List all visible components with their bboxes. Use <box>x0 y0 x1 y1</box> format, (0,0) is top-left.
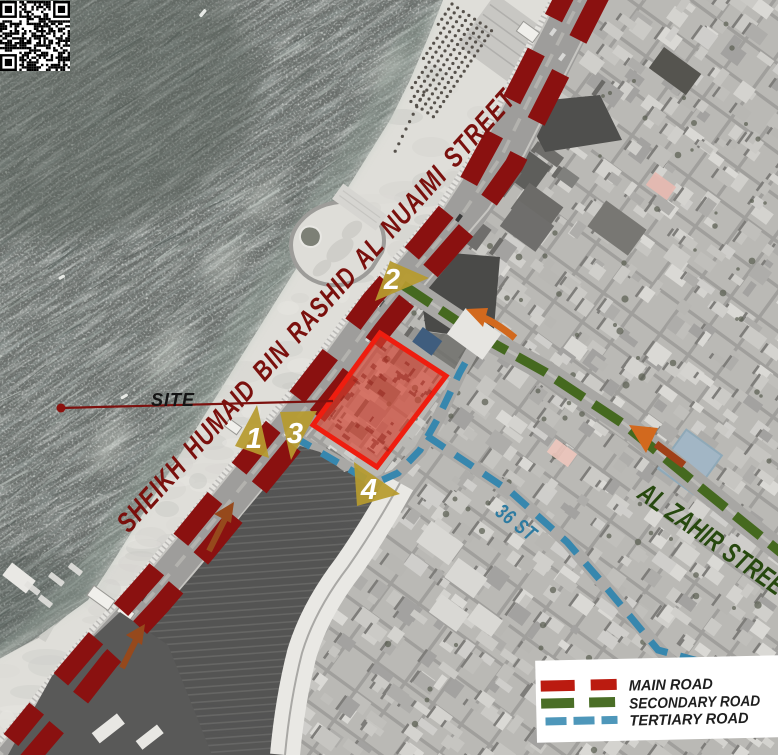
svg-text:MAIN ROAD: MAIN ROAD <box>629 676 714 695</box>
svg-text:1: 1 <box>246 423 262 455</box>
svg-text:TERTIARY ROAD: TERTIARY ROAD <box>629 710 749 730</box>
svg-text:2: 2 <box>383 264 400 296</box>
svg-text:4: 4 <box>360 474 377 506</box>
svg-text:SITE: SITE <box>151 390 195 410</box>
svg-text:3: 3 <box>287 418 303 450</box>
